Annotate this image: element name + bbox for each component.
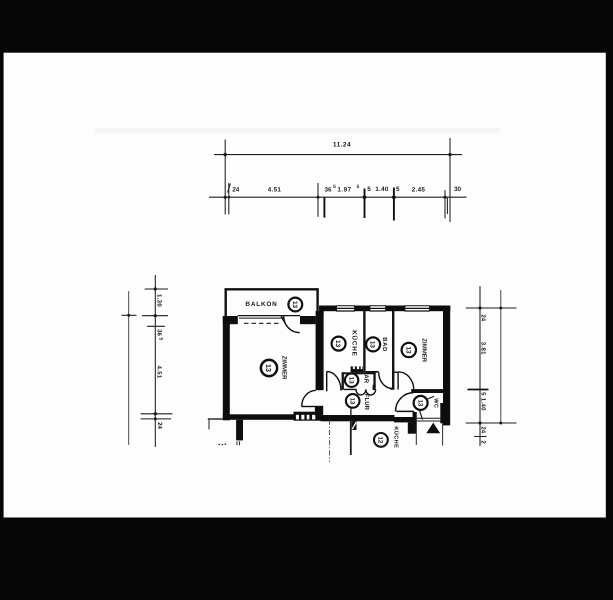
svg-text:13: 13 [349,397,356,404]
svg-text:24: 24 [480,314,487,321]
svg-text:KÜCHE: KÜCHE [351,330,359,356]
svg-text:24: 24 [156,422,163,429]
svg-text:BALKON: BALKON [245,301,277,308]
svg-text:30: 30 [454,186,462,193]
svg-text:KÜCHE: KÜCHE [393,426,400,448]
svg-text:5: 5 [357,184,360,190]
svg-text:13: 13 [404,346,411,354]
svg-text:13: 13 [291,301,298,309]
svg-text:13: 13 [416,399,423,406]
svg-text:12: 12 [377,436,384,443]
svg-text:11.24: 11.24 [333,141,351,148]
svg-text:24: 24 [480,426,487,433]
svg-text:24: 24 [232,187,240,194]
svg-text:5: 5 [367,186,371,193]
svg-text:ZIMMER: ZIMMER [280,356,287,380]
svg-text:WC: WC [433,398,439,408]
svg-text:AR: AR [362,374,369,383]
svg-text:4.51: 4.51 [155,365,162,378]
svg-text:5: 5 [157,337,163,340]
svg-text:2.45: 2.45 [412,186,426,193]
svg-text:13: 13 [369,341,376,349]
svg-text:36: 36 [324,186,332,193]
svg-text:5: 5 [333,184,336,190]
svg-text:36: 36 [155,329,162,336]
svg-text:13: 13 [347,377,354,384]
svg-text:4.51: 4.51 [268,186,282,193]
svg-text:1.97: 1.97 [337,186,351,193]
svg-text:1.30: 1.30 [155,294,162,307]
svg-text:BAD: BAD [381,337,388,352]
svg-text:FLUR: FLUR [363,394,370,411]
svg-text:ZIMMER: ZIMMER [420,338,427,362]
svg-text:13: 13 [264,364,273,372]
svg-text:3.81: 3.81 [480,342,487,355]
svg-text:1.40: 1.40 [480,398,487,411]
svg-text:13: 13 [334,340,341,348]
svg-text:1.40: 1.40 [375,186,389,193]
svg-text:5: 5 [396,186,400,193]
